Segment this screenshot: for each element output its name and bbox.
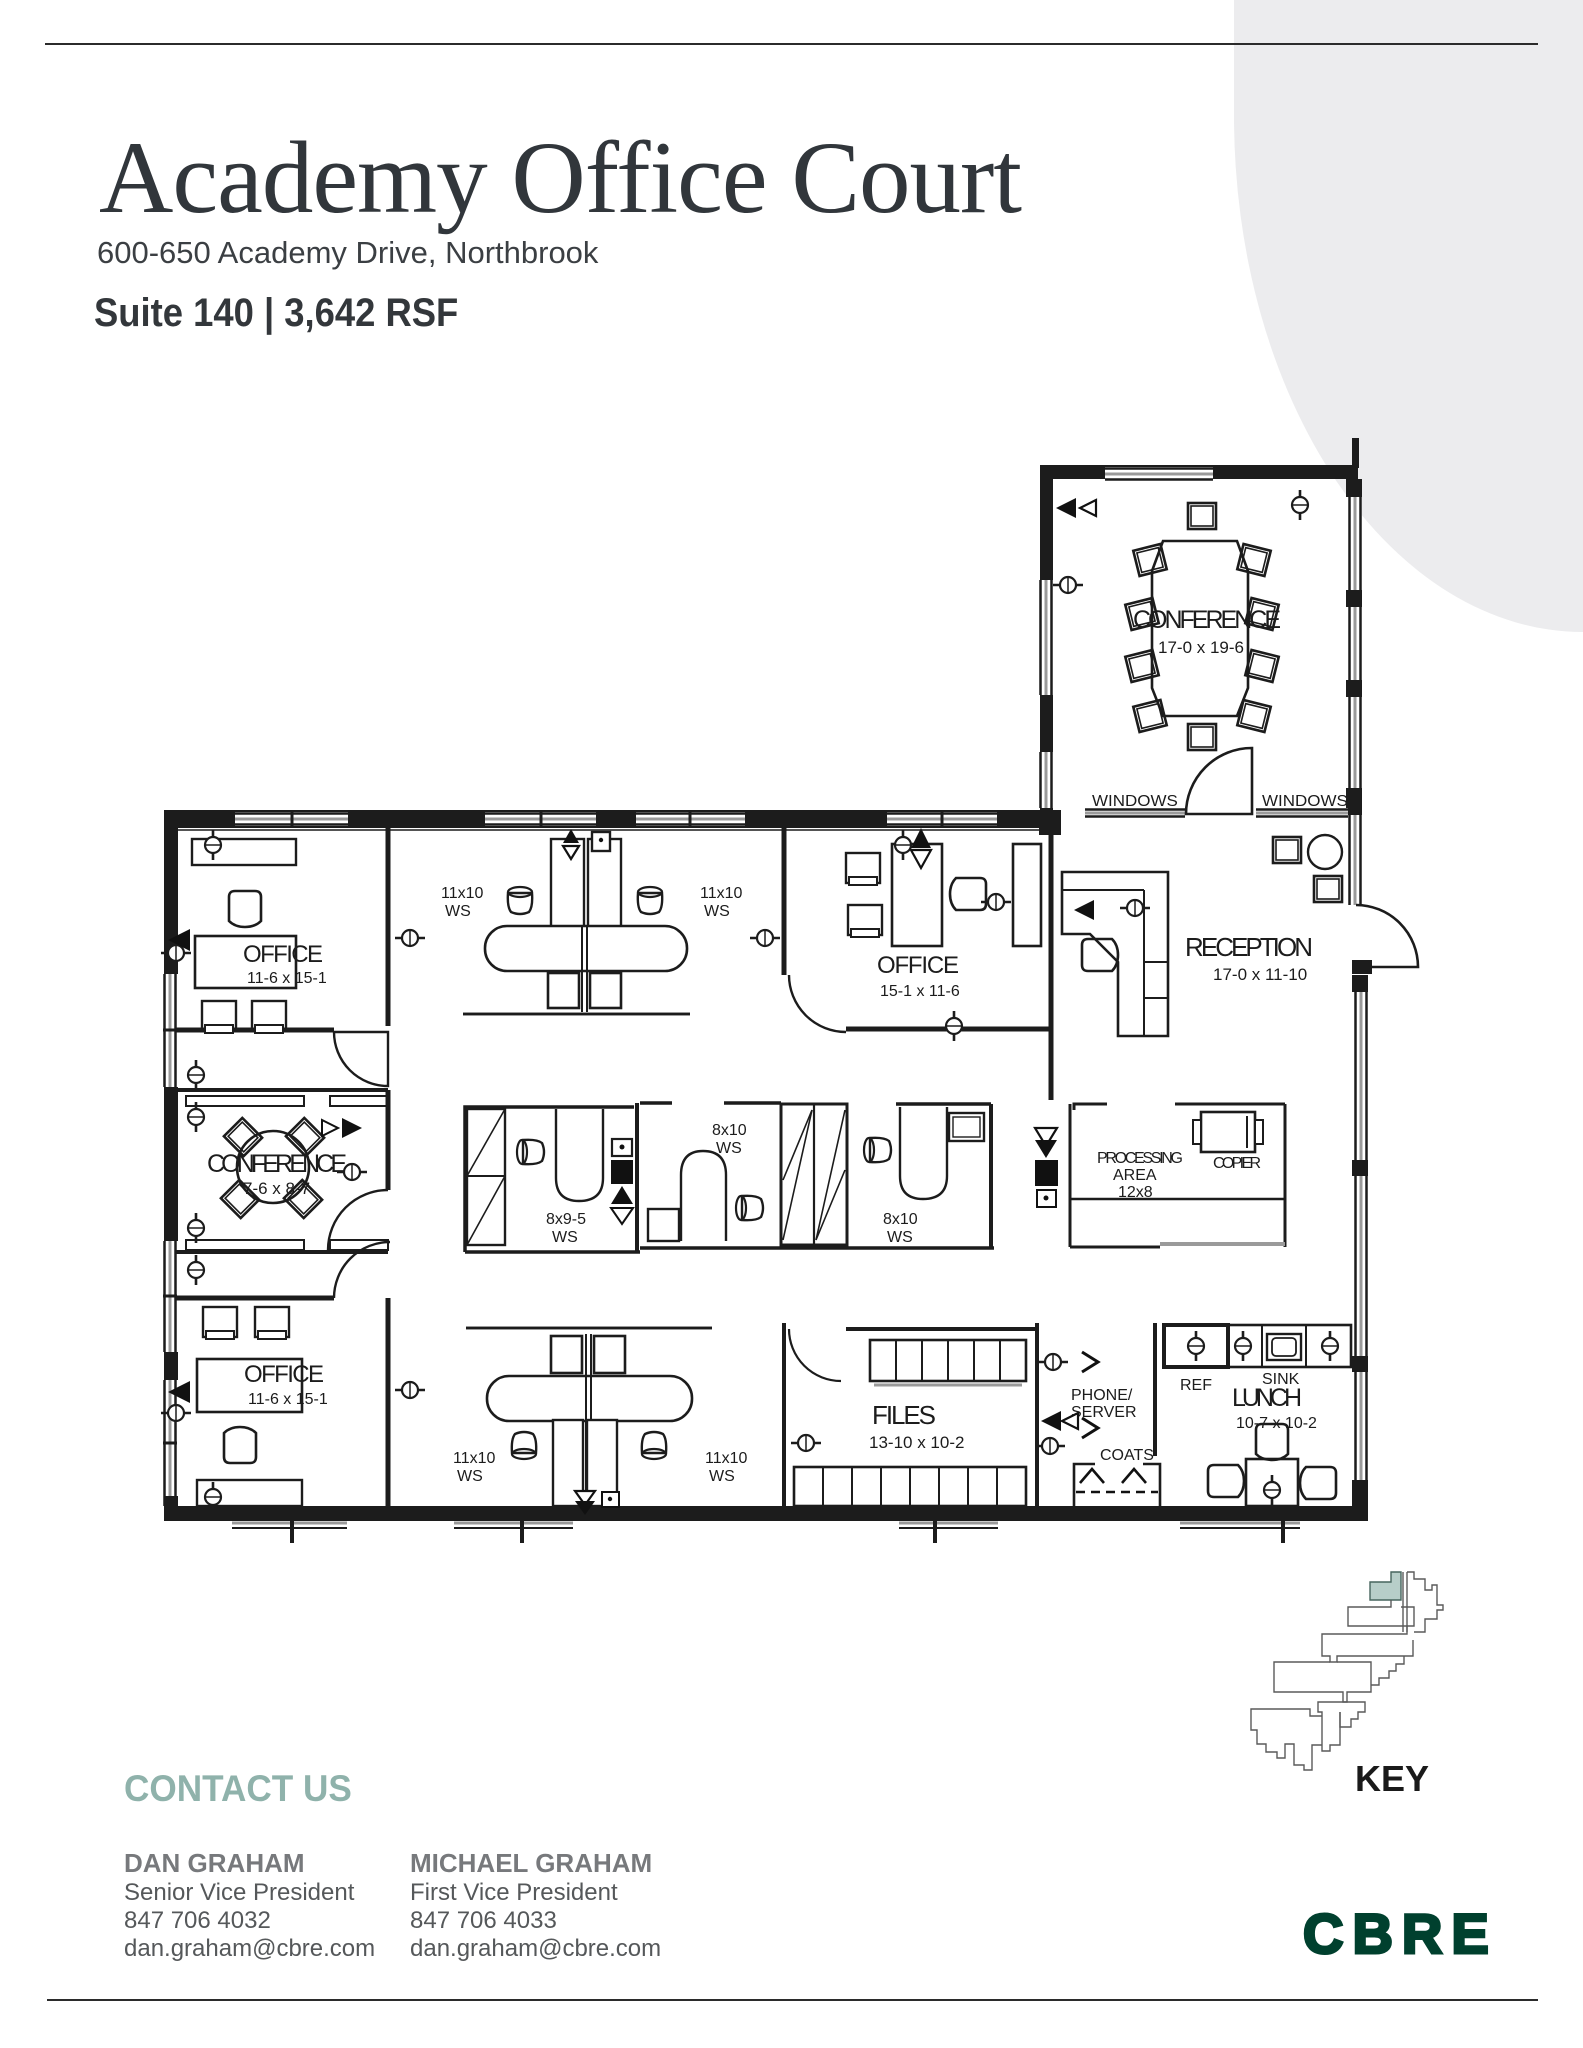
svg-text:13-10 x 10-2: 13-10 x 10-2 — [869, 1433, 964, 1452]
svg-text:11-6 x 15-1: 11-6 x 15-1 — [248, 1391, 328, 1408]
svg-text:WS: WS — [887, 1229, 913, 1246]
svg-text:WS: WS — [457, 1468, 483, 1485]
svg-text:17-0 x 11-10: 17-0 x 11-10 — [1213, 965, 1307, 984]
svg-text:11x10: 11x10 — [441, 885, 484, 902]
svg-text:11x10: 11x10 — [705, 1450, 748, 1467]
svg-text:CONFERENCE: CONFERENCE — [207, 1150, 347, 1178]
svg-text:COATS: COATS — [1100, 1447, 1154, 1464]
svg-text:8x10: 8x10 — [712, 1122, 747, 1139]
svg-text:17-0 x 19-6: 17-0 x 19-6 — [1158, 638, 1244, 657]
svg-text:CONFERENCE: CONFERENCE — [1133, 606, 1281, 634]
svg-text:WINDOWS: WINDOWS — [1262, 793, 1348, 810]
svg-text:FILES: FILES — [872, 1400, 936, 1430]
svg-text:WINDOWS: WINDOWS — [1092, 793, 1178, 810]
svg-text:8x10: 8x10 — [883, 1211, 918, 1228]
svg-text:WS: WS — [709, 1468, 735, 1485]
svg-text:REF: REF — [1180, 1377, 1212, 1394]
svg-text:LUNCH: LUNCH — [1232, 1384, 1302, 1412]
svg-text:RECEPTION: RECEPTION — [1185, 932, 1313, 962]
svg-text:8x9-5: 8x9-5 — [546, 1211, 586, 1228]
svg-text:11x10: 11x10 — [453, 1450, 496, 1467]
svg-text:COPIER: COPIER — [1213, 1155, 1261, 1172]
svg-text:7-6 x 8-7: 7-6 x 8-7 — [243, 1179, 310, 1198]
svg-text:OFFICE: OFFICE — [877, 952, 959, 979]
svg-text:SERVER: SERVER — [1071, 1404, 1137, 1421]
svg-text:11x10: 11x10 — [700, 885, 743, 902]
svg-text:11-6 x 15-1: 11-6 x 15-1 — [247, 970, 327, 987]
svg-text:PHONE/: PHONE/ — [1071, 1387, 1133, 1404]
svg-text:OFFICE: OFFICE — [244, 1361, 324, 1388]
svg-text:WS: WS — [445, 903, 471, 920]
svg-text:12x8: 12x8 — [1118, 1184, 1153, 1201]
svg-text:WS: WS — [704, 903, 730, 920]
svg-text:OFFICE: OFFICE — [243, 941, 323, 968]
svg-text:PROCESSING: PROCESSING — [1097, 1150, 1183, 1167]
svg-text:WS: WS — [716, 1140, 742, 1157]
svg-text:15-1 x 11-6: 15-1 x 11-6 — [880, 983, 960, 1000]
svg-text:WS: WS — [552, 1229, 578, 1246]
svg-text:AREA: AREA — [1113, 1167, 1157, 1184]
